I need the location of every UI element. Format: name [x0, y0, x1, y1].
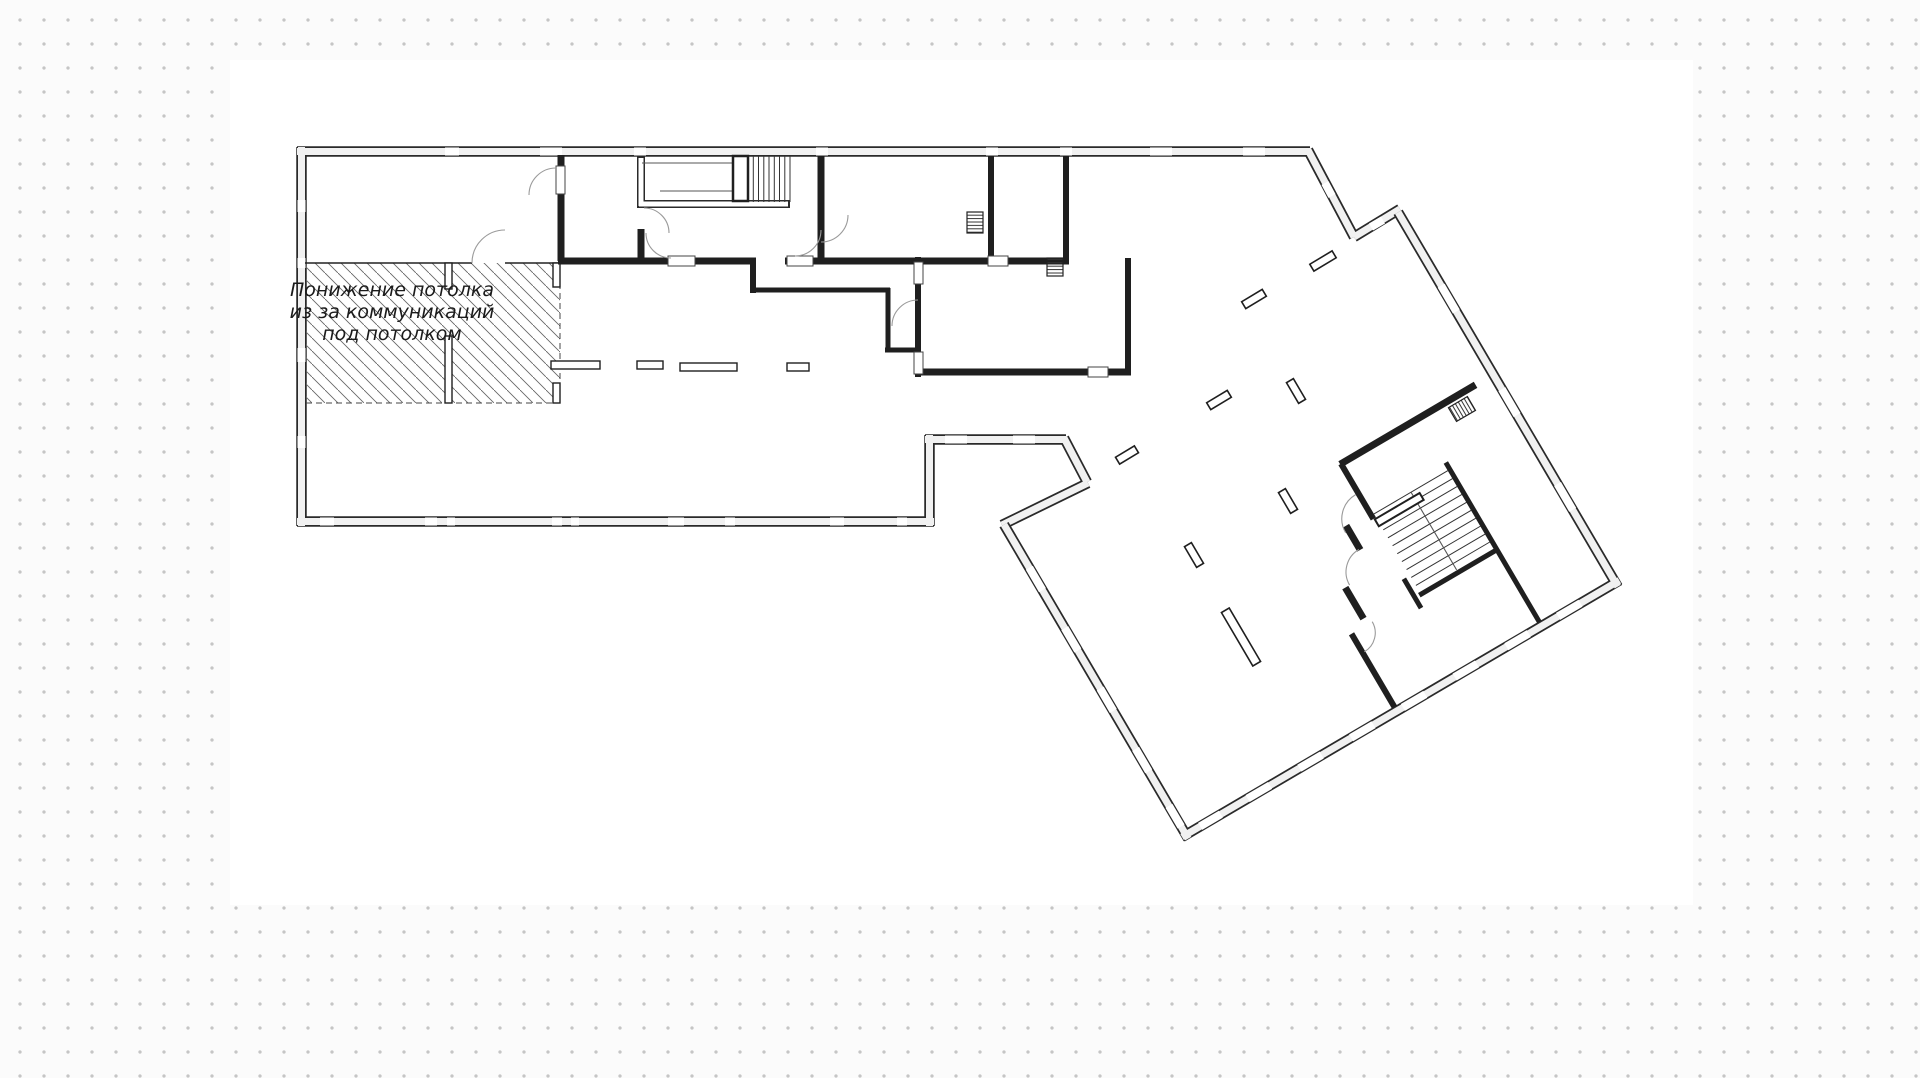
column	[1242, 289, 1267, 308]
column	[1310, 251, 1336, 271]
annotation-line-2: из за коммуникаций	[290, 301, 495, 323]
wing-interior-walls	[1275, 385, 1596, 707]
column	[1207, 390, 1232, 409]
free-wall-segments	[551, 361, 809, 371]
wing-door-arcs	[1294, 495, 1427, 652]
stair-newel	[733, 156, 748, 201]
column	[1184, 543, 1203, 568]
floor-plan-svg: Понижение потолка из за коммуникаций под…	[0, 0, 1920, 1078]
annotation-line-3: под потолком	[322, 323, 462, 345]
columns-group	[1116, 251, 1337, 666]
annotation-line-1: Понижение потолка	[290, 279, 494, 301]
stair-flight-lines	[642, 163, 733, 191]
stair-risers	[748, 156, 790, 202]
hatched-ceiling-zone: Понижение потолка из за коммуникаций под…	[290, 263, 561, 403]
rotated-wing	[965, 210, 1622, 841]
staircase-wing	[1372, 470, 1493, 592]
column-long	[1221, 608, 1260, 666]
column	[1116, 446, 1139, 464]
design-canvas[interactable]: { "artboard": { "type": "floor-plan-draw…	[0, 0, 1920, 1078]
vent-shafts	[967, 212, 1063, 276]
column	[1286, 379, 1305, 404]
staircase-main	[637, 156, 790, 208]
column	[1278, 489, 1297, 514]
